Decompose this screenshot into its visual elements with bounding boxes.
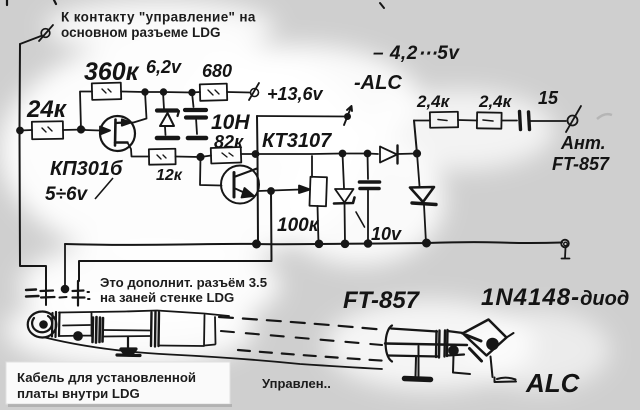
svg-text:+13,6v: +13,6v xyxy=(267,84,324,104)
svg-text:на заней стенке LDG: на заней стенке LDG xyxy=(100,290,234,305)
svg-text:5÷6v: 5÷6v xyxy=(45,184,89,205)
svg-text:КП301б: КП301б xyxy=(50,158,123,180)
svg-text:FT-857: FT-857 xyxy=(343,287,421,314)
svg-text:6,2v: 6,2v xyxy=(146,57,182,77)
svg-text:24к: 24к xyxy=(26,96,68,123)
svg-text:Кабель для установленной: Кабель для установленной xyxy=(17,370,196,385)
svg-text:основном разъеме LDG: основном разъеме LDG xyxy=(61,25,220,40)
svg-text:FT-857: FT-857 xyxy=(552,154,610,174)
svg-text:12к: 12к xyxy=(156,167,183,184)
svg-text:– 4,2⋯5v: – 4,2⋯5v xyxy=(373,43,460,64)
svg-text:10Н: 10Н xyxy=(211,111,250,134)
svg-text:680: 680 xyxy=(202,61,232,81)
svg-text:100к: 100к xyxy=(277,215,320,236)
svg-text:15: 15 xyxy=(538,88,559,108)
svg-text:Это дополнит. разъём 3.5: Это дополнит. разъём 3.5 xyxy=(100,275,267,290)
svg-text:360к: 360к xyxy=(84,58,140,86)
svg-text:Управлен..: Управлен.. xyxy=(262,376,331,391)
svg-text:2,4к: 2,4к xyxy=(416,92,451,111)
svg-text:К контакту "управление" на: К контакту "управление" на xyxy=(61,10,256,25)
svg-text:Ант.: Ант. xyxy=(560,133,606,153)
svg-text:10v: 10v xyxy=(371,224,402,244)
svg-text:платы внутри LDG: платы внутри LDG xyxy=(17,386,140,401)
svg-text:2,4к: 2,4к xyxy=(478,92,513,111)
svg-text:-ALC: -ALC xyxy=(354,72,402,94)
svg-text:ALC: ALC xyxy=(525,368,581,398)
svg-text:82к: 82к xyxy=(214,132,244,152)
svg-text:КТ3107: КТ3107 xyxy=(262,130,332,152)
svg-text:1N4148-диод: 1N4148-диод xyxy=(481,284,629,311)
